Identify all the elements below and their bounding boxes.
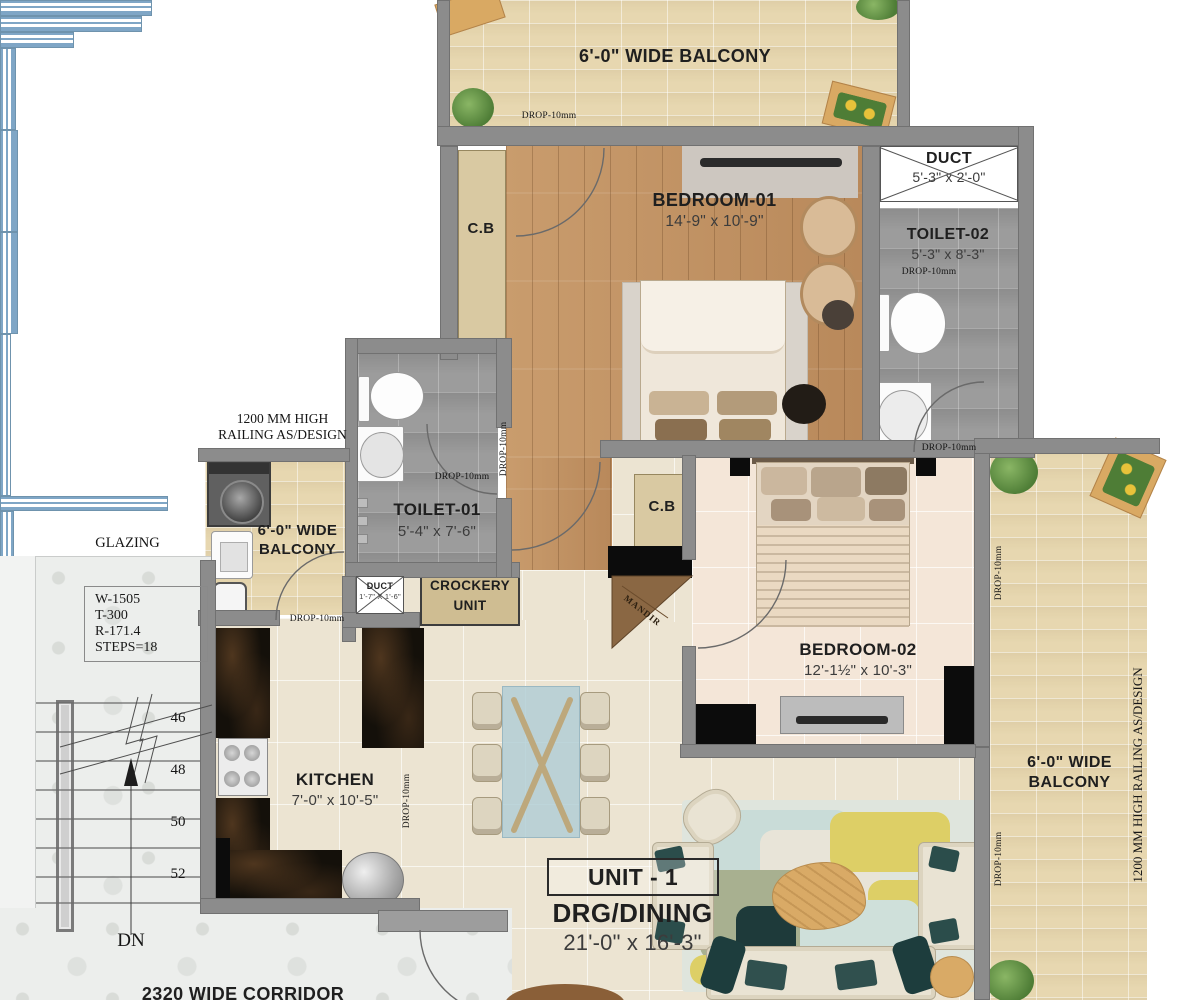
stair-info-line: T-300: [95, 608, 207, 624]
wall-bedroom2-west-lower: [682, 646, 696, 746]
toilet1-tank: [358, 376, 370, 422]
kitchen-counter-left: [216, 628, 270, 738]
drop-note-balcony-left: DROP-10mm: [286, 614, 348, 624]
bedroom1-entry-floor: [506, 458, 614, 578]
wall-east-toilet2: [1018, 126, 1034, 456]
step-number-50: 50: [160, 814, 196, 831]
step-number-48: 48: [160, 762, 196, 779]
wall-balcony-top-left: [437, 0, 450, 128]
bed2-pillow: [771, 499, 811, 521]
step-number-46: 46: [160, 710, 196, 727]
railing-left-note-line2: RAILING AS/DESIGN: [205, 427, 360, 443]
bedroom1-label: BEDROOM-01: [592, 190, 837, 211]
bed1-pillow: [717, 391, 777, 415]
dining-table: [502, 686, 580, 838]
balcony-top-label: 6'-0" WIDE BALCONY: [555, 46, 795, 67]
wall-bedroom1-west: [440, 146, 458, 360]
bed2-pillow: [811, 467, 861, 497]
toilet1-label: TOILET-01: [372, 500, 502, 520]
wall-bedroom2-east: [974, 445, 990, 747]
bed1-pillow: [655, 419, 707, 441]
coffee-table: [772, 862, 866, 930]
toilet1-dim: 5'-4" x 7'-6": [372, 523, 502, 540]
unit1-title: UNIT - 1: [547, 858, 719, 896]
toilet2-basin: [878, 390, 928, 444]
bed1-pillow: [719, 419, 771, 441]
drop-note-balcony-right-lower: DROP-10mm: [994, 830, 1004, 888]
drop-note-kitchen: DROP-10mm: [402, 772, 412, 830]
balcony-right-label-line1: 6'-0" WIDE: [1012, 754, 1127, 772]
balcony-left-label-line1: 6'-0" WIDE: [250, 522, 345, 539]
kitchen-label: KITCHEN: [280, 770, 390, 790]
tray-table-bedroom1: [782, 384, 826, 424]
glazing-window: [0, 496, 168, 511]
wall-bedroom2-south: [680, 744, 976, 758]
wall-balcony-left-north: [198, 448, 350, 462]
stool-bedroom1: [822, 300, 854, 330]
window-bedroom2: [0, 130, 18, 232]
bedroom2-label: BEDROOM-02: [778, 640, 938, 660]
bedroom2-tv: [796, 716, 888, 724]
duct-dim: 5'-3" x 2'-0": [880, 169, 1018, 185]
railing-left-note-line1: 1200 MM HIGH: [215, 411, 350, 427]
planter-flowers: [1101, 451, 1155, 507]
side-table: [930, 956, 974, 998]
duct-label: DUCT: [880, 150, 1018, 168]
burner: [244, 771, 260, 787]
washing-machine: [207, 461, 271, 527]
bed2-pillow: [817, 497, 865, 521]
drop-note-balcony-right-upper: DROP-10mm: [994, 544, 1004, 602]
wall-balcony-top-right: [897, 0, 910, 128]
wall-balcony-right-north: [974, 438, 1160, 454]
shoe-cabinet: [608, 546, 692, 578]
bed1-pillow: [649, 391, 709, 415]
window-north-2: [0, 16, 142, 32]
drop-note-toilet2: DROP-10mm: [898, 267, 960, 277]
sofa-pillow: [834, 959, 877, 990]
duct-small-dim: 1'-7" X 1'-6": [352, 592, 408, 601]
kitchen-stove: [218, 738, 268, 796]
kitchen-dim: 7'-0" x 10'-5": [272, 792, 398, 809]
entry-threshold: [378, 910, 508, 932]
toilet2-dim: 5'-3" x 8'-3": [882, 246, 1014, 262]
plant-balcony-right-bottom: [986, 960, 1034, 1000]
wall-toilet1-north: [345, 338, 510, 354]
bedroom2-dim: 12'-1½" x 10'-3": [778, 662, 938, 679]
down-label: DN: [106, 930, 156, 952]
unit1-dim: 21'-0" x 16'-3": [535, 930, 730, 956]
wall-bedroom1-toilet2: [862, 146, 880, 456]
wall-toilet1-east-upper: [496, 338, 512, 428]
dining-chair: [472, 692, 502, 730]
cupboard1-label: C.B: [456, 220, 506, 237]
tv-bedroom1: [700, 158, 842, 167]
toilet1-bowl: [370, 372, 424, 420]
glazing-label: GLAZING: [70, 535, 185, 552]
step-number-52: 52: [160, 866, 196, 883]
railing-balcony-left: [0, 334, 11, 496]
cupboard-bedroom1: [458, 150, 506, 346]
wall-north: [437, 126, 1033, 146]
dining-chair: [580, 797, 610, 835]
drop-note-toilet1: DROP-10mm: [432, 472, 492, 482]
washing-machine-drum: [220, 480, 264, 524]
wall-duct-small-west: [342, 576, 356, 642]
drop-note-toilet2-south: DROP-10mm: [918, 443, 980, 453]
bed1-blanket: [641, 281, 785, 354]
crockery-label-line2: UNIT: [422, 598, 518, 613]
bed-bedroom2: [756, 462, 910, 626]
bed2-pillow: [761, 467, 807, 495]
window-toilet2: [0, 48, 16, 130]
toilet1-basin: [360, 432, 404, 478]
planter-flowers: [833, 92, 888, 129]
balcony-right-floor: [990, 445, 1147, 1000]
corridor-label: 2320 WIDE CORRIDOR: [138, 984, 348, 1000]
bed2-pillow: [865, 467, 907, 495]
dining-chair: [580, 744, 610, 782]
window-living: [0, 232, 18, 334]
cupboard2-label: C.B: [632, 498, 692, 515]
railing-right-note: 1200 MM HIGH RAILING AS/DESIGN: [1130, 655, 1146, 895]
wall-living-east: [974, 747, 990, 1000]
duct-small-label: DUCT: [356, 581, 404, 591]
bedroom2-dresser: [780, 696, 904, 734]
balcony-left-label-line2: BALCONY: [250, 541, 345, 558]
floor-plan: W-1505 T-300 R-171.4 STEPS=18: [0, 0, 1200, 1000]
burner: [224, 771, 240, 787]
drop-note-balcony-top: DROP-10mm: [518, 111, 580, 121]
toilet2-label: TOILET-02: [882, 226, 1014, 244]
bedroom1-dim: 14'-9" x 10'-9": [592, 213, 837, 231]
bed2-blanket: [757, 525, 909, 627]
kitchen-counter-right: [362, 628, 424, 748]
cabinet-inner: [220, 542, 248, 572]
bed2-pillow: [869, 499, 905, 521]
dining-chair: [472, 744, 502, 782]
burner: [224, 745, 240, 761]
wall-duct-small-south: [342, 612, 420, 628]
stair-info-line: STEPS=18: [95, 640, 207, 656]
window-north-1: [0, 0, 152, 16]
stair-info-line: R-171.4: [95, 624, 207, 640]
plant-balcony-top-left: [452, 88, 494, 128]
stair-info-box: W-1505 T-300 R-171.4 STEPS=18: [84, 586, 208, 662]
balcony-right-label-line2: BALCONY: [1012, 774, 1127, 792]
burner: [244, 745, 260, 761]
dining-chair: [580, 692, 610, 730]
washing-machine-panel: [209, 463, 269, 474]
window-toilet1: [0, 32, 74, 48]
balcony-left-cabinet: [211, 531, 253, 579]
stair-handrail: [56, 700, 74, 932]
stair-info-line: W-1505: [95, 592, 207, 608]
dining-chair: [472, 797, 502, 835]
drop-note-toilet1-east: DROP-10mm: [499, 420, 509, 478]
crockery-label-line1: CROCKERY: [422, 578, 518, 593]
sofa-pillow: [744, 959, 787, 990]
unit1-room: DRG/DINING: [530, 898, 735, 929]
bed-bedroom1: [640, 280, 786, 452]
